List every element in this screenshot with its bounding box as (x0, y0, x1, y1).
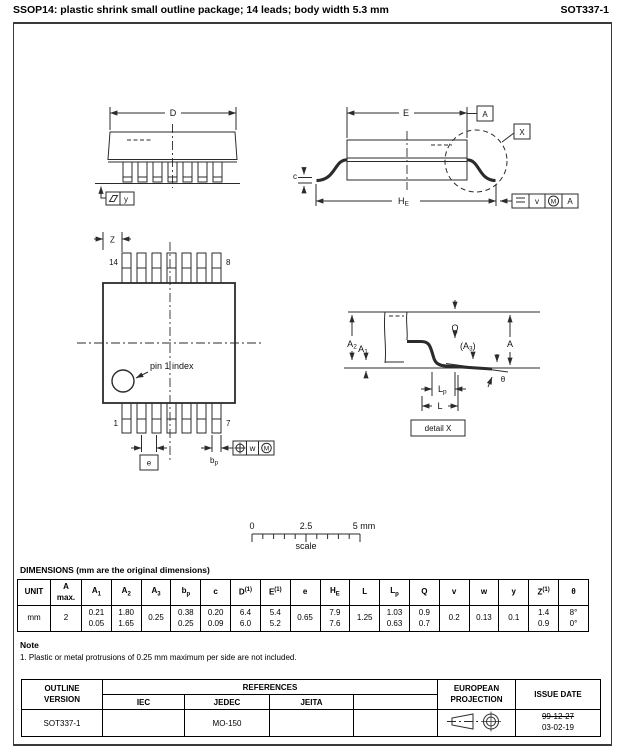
jeita-header: JEITA (270, 695, 354, 710)
detail-x-caption: detail X (425, 424, 452, 433)
dim-label-a3: (A3) (460, 341, 476, 353)
dim-value-cell: 0.90.7 (409, 606, 439, 632)
dim-value-cell: 0.2 (439, 606, 469, 632)
outline-version-header: OUTLINEVERSION (22, 680, 103, 710)
dim-label-bp: bp (210, 456, 218, 467)
pin1-index-dot (112, 370, 134, 392)
iec-header: IEC (103, 695, 185, 710)
first-angle-projection-icon (445, 710, 509, 734)
dim-col-header: Q (409, 580, 439, 606)
scale-tick-0: 0 (249, 521, 254, 531)
pin-1-label: 1 (114, 419, 119, 428)
dim-value-cell: 1.030.63 (380, 606, 410, 632)
dim-col-header: UNIT (18, 580, 51, 606)
dim-value-cell: 0.380.25 (171, 606, 201, 632)
tolerance-v-label: v (535, 197, 539, 206)
outline-version-cell: SOT337-1 (22, 710, 103, 737)
dim-col-header: Z(1) (529, 580, 559, 606)
dim-col-header: Amax. (51, 580, 82, 606)
references-header: REFERENCES (103, 680, 438, 695)
dim-value-cell: 6.46.0 (231, 606, 261, 632)
package-drawing: D y E A X (0, 0, 620, 560)
dim-value-cell: 0.210.05 (82, 606, 112, 632)
note-heading: Note (20, 640, 39, 650)
dim-value-cell: 2 (51, 606, 82, 632)
seating-plane-icon (516, 198, 525, 202)
pin-8-label: 8 (226, 258, 231, 267)
references-table: OUTLINEVERSION REFERENCES EUROPEANPROJEC… (21, 679, 601, 737)
datasheet-page: SSOP14: plastic shrink small outline pac… (0, 0, 620, 753)
tolerance-w-label: w (249, 444, 256, 453)
scale-tick-mid: 2.5 (300, 521, 313, 531)
mmc-m-label: M (551, 199, 556, 206)
scale-caption: scale (295, 541, 316, 551)
dim-label-a: A (507, 339, 513, 349)
issue-date-cell: 99-12-2703-02-19 (516, 710, 601, 737)
true-position-icon (235, 443, 246, 454)
dim-value-cell: 1.40.9 (529, 606, 559, 632)
dim-col-header: A1 (82, 580, 112, 606)
pin1-index-label: pin 1 index (150, 361, 194, 371)
jeita-cell (270, 710, 354, 737)
dim-col-header: w (469, 580, 499, 606)
dimensions-heading: DIMENSIONS (mm are the original dimensio… (20, 565, 210, 575)
iec-cell (103, 710, 185, 737)
dim-col-header: HE (320, 580, 350, 606)
plan-view-drawing: Z 14 8 pin 1 index 1 7 e bp (77, 232, 274, 470)
dim-col-header: A2 (111, 580, 141, 606)
datum-label-y: y (124, 195, 128, 204)
blank-header (354, 695, 438, 710)
dim-col-header: y (499, 580, 529, 606)
note-text: 1. Plastic or metal protrusions of 0.25 … (20, 653, 297, 662)
pin-14-label: 14 (109, 258, 118, 267)
dim-value-cell: 1.25 (350, 606, 380, 632)
pin-7-label: 7 (226, 419, 231, 428)
dim-label-l: L (437, 401, 442, 411)
dim-label-lp: Lp (438, 384, 447, 396)
jedec-cell: MO-150 (185, 710, 270, 737)
dim-col-header: bp (171, 580, 201, 606)
jedec-header: JEDEC (185, 695, 270, 710)
dim-col-header: c (201, 580, 231, 606)
dim-label-he: HE (398, 196, 410, 208)
dim-label-a2: A2 (347, 339, 357, 351)
mmc-m-label: M (264, 446, 269, 453)
issue-date-header: ISSUE DATE (516, 680, 601, 710)
dim-value-cell: 0.1 (499, 606, 529, 632)
dim-value-cell: 1.801.65 (111, 606, 141, 632)
detail-x-drawing: A2 A1 Q (A3) A θ Lp L detail X (344, 300, 540, 436)
datum-ref-a-label: A (567, 197, 573, 206)
dim-label-theta: θ (501, 375, 506, 384)
scale-bar: 0 2.5 5 mm scale (249, 521, 375, 551)
dimensions-table: UNIT Amax. A1 A2 A3 bp c D(1) E(1) e HE … (17, 579, 589, 632)
dim-label-z: Z (110, 236, 115, 245)
dim-col-header: θ (559, 580, 589, 606)
dim-label-q: Q (451, 323, 458, 333)
dim-label-e-pitch: e (147, 459, 152, 468)
dim-col-header: v (439, 580, 469, 606)
blank-cell (354, 710, 438, 737)
dim-value-cell: mm (18, 606, 51, 632)
detail-ref-label-x: X (519, 128, 525, 137)
dim-col-header: L (350, 580, 380, 606)
dim-col-header: Lp (380, 580, 410, 606)
front-view-drawing: D y (95, 107, 240, 205)
dim-label-c: c (293, 172, 297, 181)
dim-label-a1: A1 (358, 344, 368, 356)
dim-col-header: D(1) (231, 580, 261, 606)
projection-header: EUROPEANPROJECTION (438, 680, 516, 710)
flatness-icon (110, 196, 118, 202)
dim-value-cell: 5.45.2 (260, 606, 290, 632)
dim-col-header: e (290, 580, 320, 606)
dim-value-cell: 0.65 (290, 606, 320, 632)
dim-value-cell: 0.13 (469, 606, 499, 632)
dim-label-d: D (170, 108, 177, 118)
side-view-drawing: E A X c HE v M (293, 106, 578, 208)
dim-value-cell: 8°0° (559, 606, 589, 632)
dim-col-header: A3 (141, 580, 171, 606)
dim-value-cell: 0.25 (141, 606, 171, 632)
dim-label-e-width: E (403, 108, 409, 118)
datum-label-a: A (482, 110, 488, 119)
dim-col-header: E(1) (260, 580, 290, 606)
dim-value-cell: 7.97.6 (320, 606, 350, 632)
projection-symbol-cell (438, 710, 516, 737)
scale-tick-end: 5 mm (353, 521, 376, 531)
dim-value-cell: 0.200.09 (201, 606, 231, 632)
